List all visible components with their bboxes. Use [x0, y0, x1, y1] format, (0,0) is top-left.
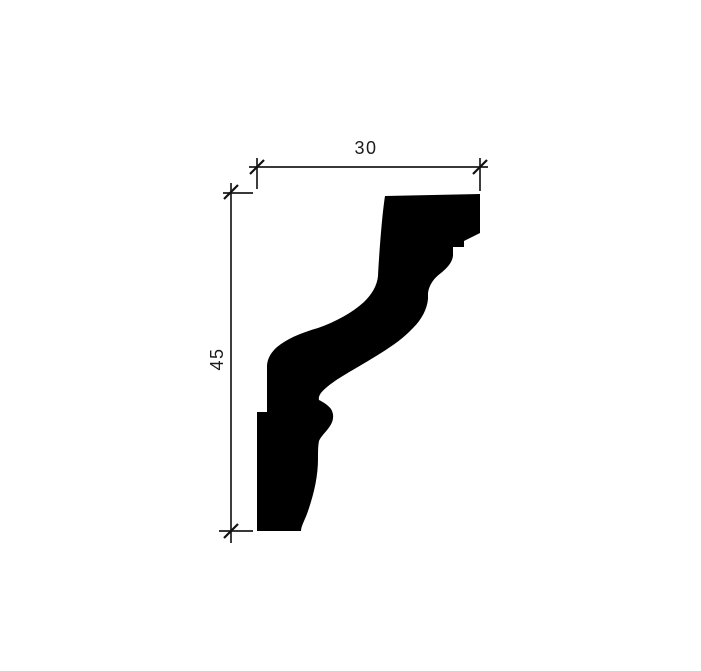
profile-silhouette: [257, 194, 480, 531]
height-dimension-label: 45: [207, 347, 227, 370]
width-dimension-label: 30: [354, 138, 377, 158]
drawing-canvas: 30 45: [0, 0, 701, 671]
width-dimension: 30: [249, 138, 488, 191]
height-dimension: 45: [207, 183, 253, 543]
profile-technical-drawing: 30 45: [0, 0, 701, 671]
